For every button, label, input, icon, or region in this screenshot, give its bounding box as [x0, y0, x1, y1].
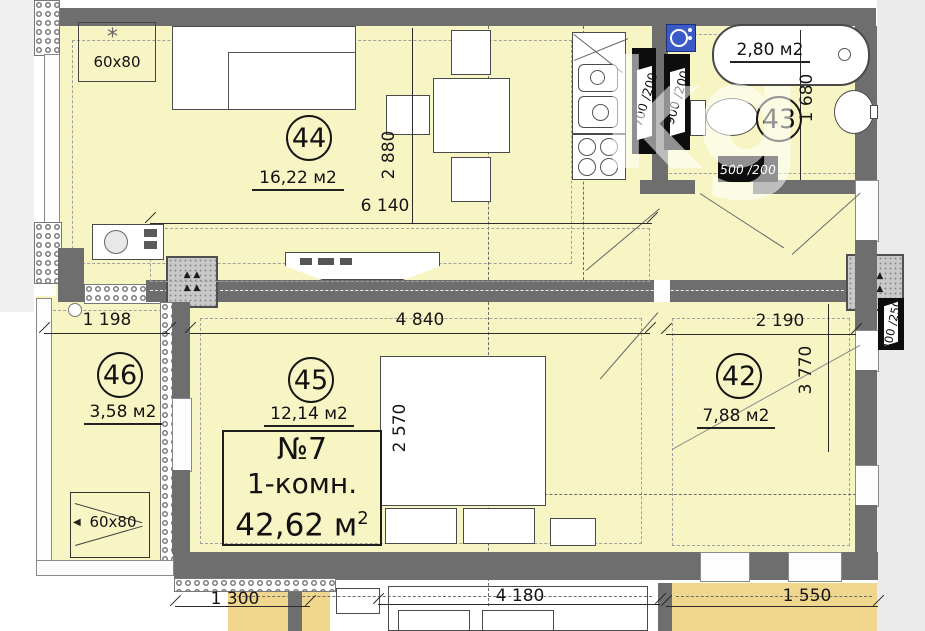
toilet-tank — [690, 100, 706, 136]
sink-drain — [590, 70, 605, 85]
window-right — [855, 465, 879, 507]
wall-bottom-right — [666, 552, 878, 580]
window-bottom — [788, 552, 842, 582]
room-number-46: 46 — [97, 352, 143, 398]
insulated-wall-top-left — [34, 0, 60, 56]
dim-label-2570: 2 570 — [390, 398, 410, 458]
dim-line-4840 — [190, 333, 650, 334]
room-number-44: 44 — [286, 115, 332, 161]
washing-machine-panel — [144, 241, 157, 249]
dining-table — [433, 78, 510, 153]
vent-label-500: 500 /200 — [719, 162, 777, 177]
toilet-bowl — [706, 98, 758, 136]
outside-area-left — [0, 0, 34, 312]
window-bottom — [700, 552, 750, 582]
wall-balcony-partition — [172, 470, 190, 554]
wall-bottom-left — [174, 552, 666, 580]
stove-burner — [600, 158, 618, 176]
bathtub-drain — [838, 48, 851, 61]
door-opening-bedroom — [654, 280, 670, 302]
washer-unit-dot — [688, 36, 692, 40]
stove-burner — [578, 158, 596, 176]
apartment-label-box: №7 1-комн. 42,62 м2 — [222, 430, 382, 546]
hood-switch — [340, 258, 352, 265]
apartment-area-sup: 2 — [357, 508, 368, 529]
room-area-46: 3,58 м2 — [84, 402, 162, 425]
stove-burner — [578, 138, 596, 156]
apartment-area-value: 42,62 м — [235, 507, 357, 543]
dim-label-1550: 1 550 — [772, 586, 842, 606]
vent-shaft: 500 /200 — [718, 156, 778, 182]
apartment-total-area: 42,62 м2 — [235, 501, 368, 543]
neighbour-pillow — [398, 610, 470, 631]
balcony-window-left — [36, 298, 52, 564]
room-area-44: 16,22 м2 — [252, 168, 344, 191]
room-area-42: 7,88 м2 — [697, 406, 775, 429]
pillow — [385, 508, 457, 544]
window-marker-bottom: ◀ 60x80 — [70, 492, 150, 558]
dim-tick — [170, 595, 181, 606]
washer-unit-drum — [670, 29, 688, 47]
wall-right — [855, 240, 877, 330]
window-left-top — [44, 54, 60, 224]
window-marker-top: * 60x80 — [78, 22, 156, 82]
window-marker-label: 60x80 — [79, 53, 155, 71]
dim-label-1198: 1 198 — [62, 310, 152, 330]
bathroom-sink — [834, 90, 874, 134]
axis-rect-hall — [672, 318, 850, 546]
dim-line-1198 — [44, 333, 170, 334]
neighbour-pillow — [482, 610, 554, 631]
room-number-42: 42 — [716, 353, 762, 399]
room-area-43: 2,80 м2 — [730, 40, 810, 63]
apartment-number: №7 — [277, 433, 327, 467]
dim-line-2880 — [412, 28, 413, 224]
neighbour-axis-line — [232, 596, 652, 597]
hood-switch — [318, 258, 334, 265]
dim-line-3770 — [828, 304, 829, 452]
dim-line-6140 — [150, 223, 652, 224]
asterisk-icon: * — [107, 25, 118, 50]
sink-drain — [592, 104, 609, 121]
wall-hall-top — [640, 180, 695, 194]
room-area-45: 12,14 м2 — [264, 404, 354, 427]
washing-machine-drum — [104, 230, 128, 254]
entry-door-opening — [855, 180, 879, 242]
dim-label-6140: 6 140 — [330, 196, 440, 216]
sink-tap — [870, 105, 878, 119]
dining-chair — [451, 157, 491, 202]
dim-label-4180: 4 180 — [485, 586, 555, 606]
arrow-left-icon: ◀ — [73, 517, 81, 528]
wall-middle — [146, 280, 878, 302]
nightstand — [550, 518, 596, 546]
sofa-seat-line — [228, 52, 356, 53]
wall-left-corner — [58, 248, 84, 302]
pillow — [463, 508, 535, 544]
room-number-43: 43 — [756, 96, 802, 142]
room-number-45: 45 — [288, 357, 334, 403]
stove-burner — [600, 138, 618, 156]
balcony-door — [172, 398, 192, 472]
wall-middle-centerline — [150, 290, 874, 291]
dim-line-1550 — [666, 606, 878, 607]
dim-label-2190: 2 190 — [740, 311, 820, 331]
floor-plan: 700 /200 900 /200 500 /200 400 /250 * 60… — [0, 0, 925, 631]
sofa — [172, 26, 356, 110]
dining-chair — [451, 30, 491, 75]
dim-label-3770: 3 770 — [796, 340, 816, 400]
washing-machine-panel — [144, 229, 157, 237]
window-right — [855, 330, 879, 372]
balcony-window-bottom — [36, 560, 174, 576]
dim-label-4840: 4 840 — [375, 310, 465, 330]
neighbour-wall-stub — [658, 583, 672, 631]
hood-switch — [300, 258, 312, 265]
dim-label-1300: 1 300 — [200, 589, 270, 609]
window-marker-label: 60x80 — [81, 513, 145, 531]
wall-balcony-partition — [172, 302, 190, 398]
wall-right — [855, 370, 877, 465]
washer-unit-dot — [688, 28, 692, 32]
sofa-arm-line — [228, 52, 229, 110]
apartment-type: 1-комн. — [247, 467, 357, 501]
dim-label-2880: 2 880 — [379, 125, 399, 185]
